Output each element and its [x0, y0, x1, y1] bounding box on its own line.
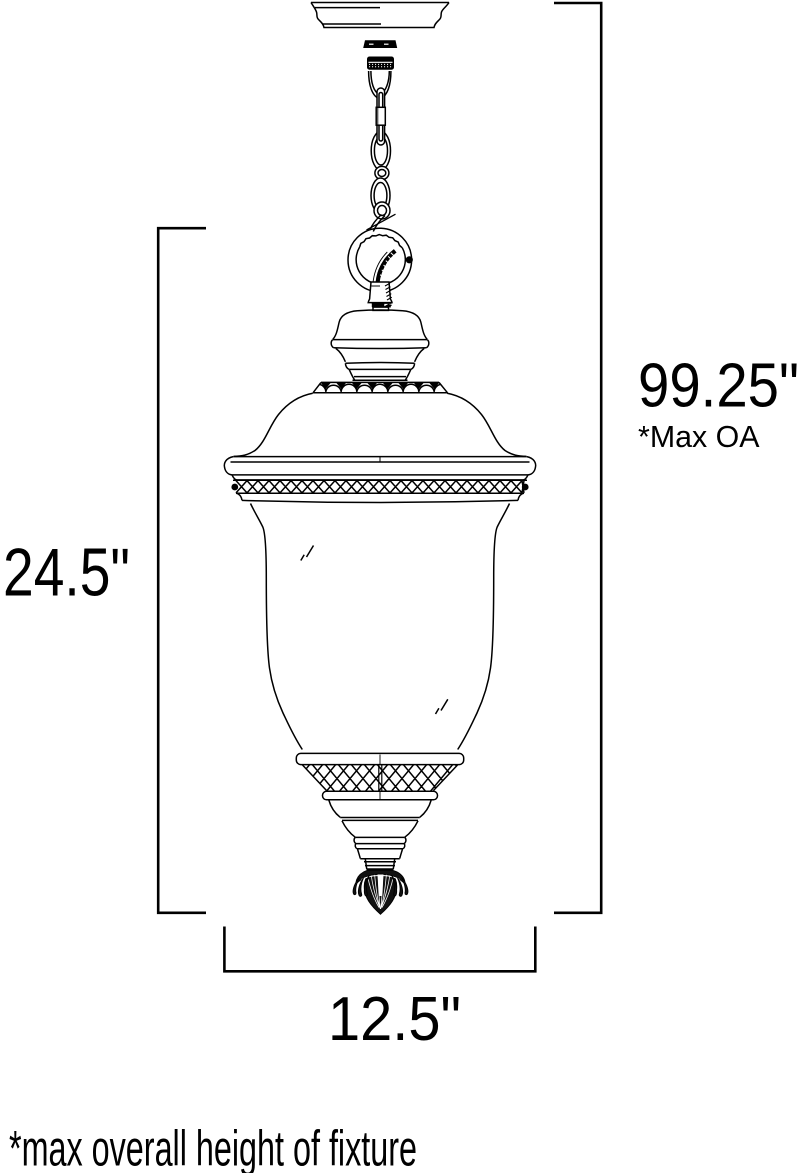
svg-text:12.5": 12.5" — [328, 985, 461, 1054]
svg-text:*max overall height of fixture: *max overall height of fixture — [9, 1120, 417, 1173]
svg-text:99.25": 99.25" — [638, 352, 799, 421]
svg-text:*Max OA: *Max OA — [638, 419, 760, 454]
svg-text:24.5": 24.5" — [3, 535, 130, 611]
